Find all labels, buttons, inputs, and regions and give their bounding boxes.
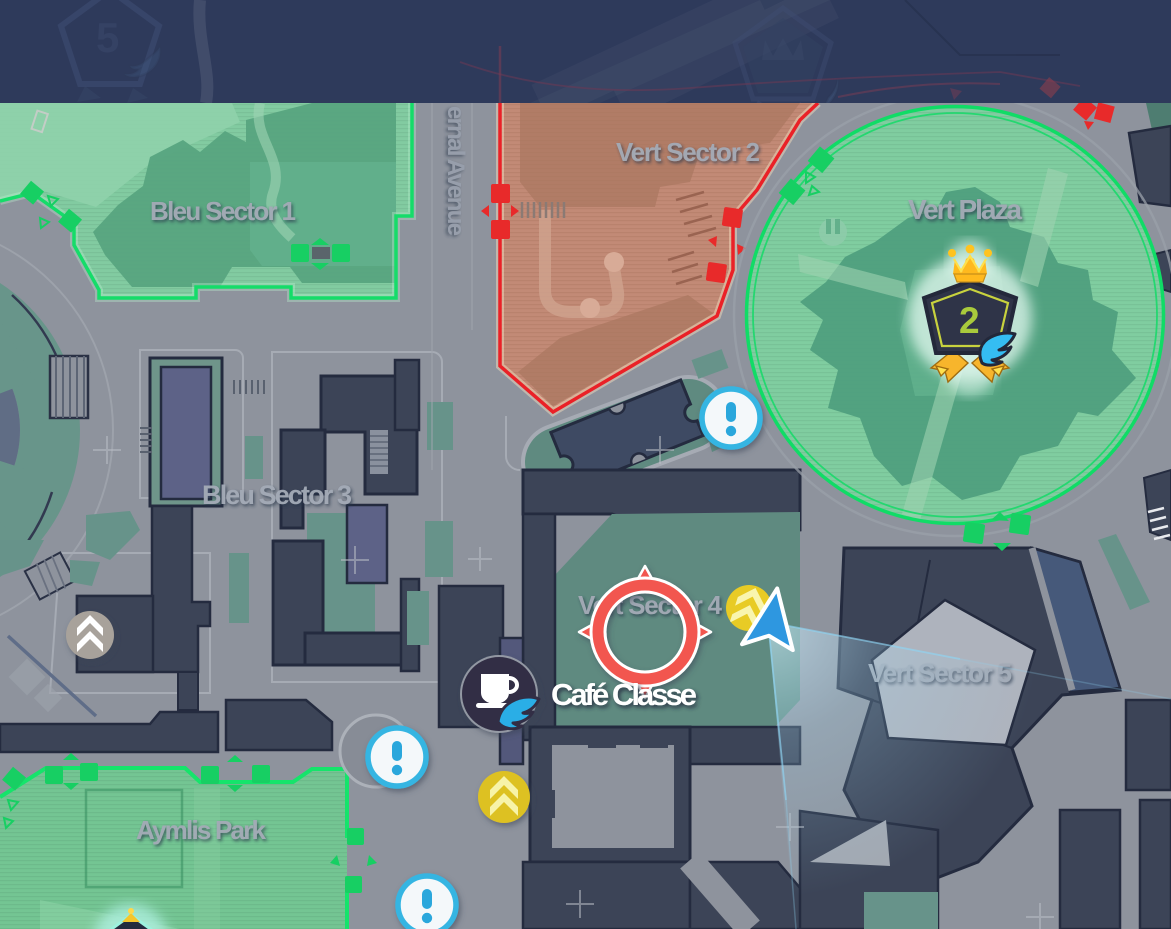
svg-text:5: 5 xyxy=(96,14,119,61)
svg-text:2: 2 xyxy=(959,300,980,341)
svg-text:Vert Plaza: Vert Plaza xyxy=(908,194,1022,225)
svg-text:Bleu Sector 3: Bleu Sector 3 xyxy=(202,480,352,510)
svg-text:Aymlis Park: Aymlis Park xyxy=(136,815,267,845)
svg-text:ernal Avenue: ernal Avenue xyxy=(442,106,469,236)
svg-text:Café Classe: Café Classe xyxy=(551,677,697,712)
svg-text:Vert Sector 2: Vert Sector 2 xyxy=(616,137,760,167)
svg-text:Bleu Sector 1: Bleu Sector 1 xyxy=(150,196,296,226)
